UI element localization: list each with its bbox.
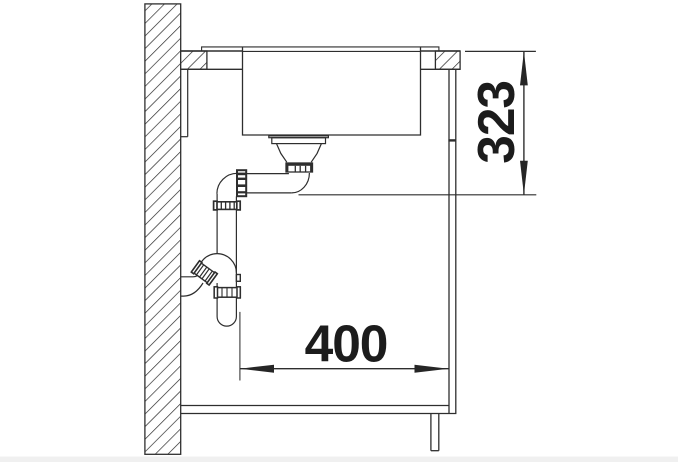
svg-text:400: 400 — [305, 315, 388, 373]
svg-text:323: 323 — [467, 81, 525, 164]
